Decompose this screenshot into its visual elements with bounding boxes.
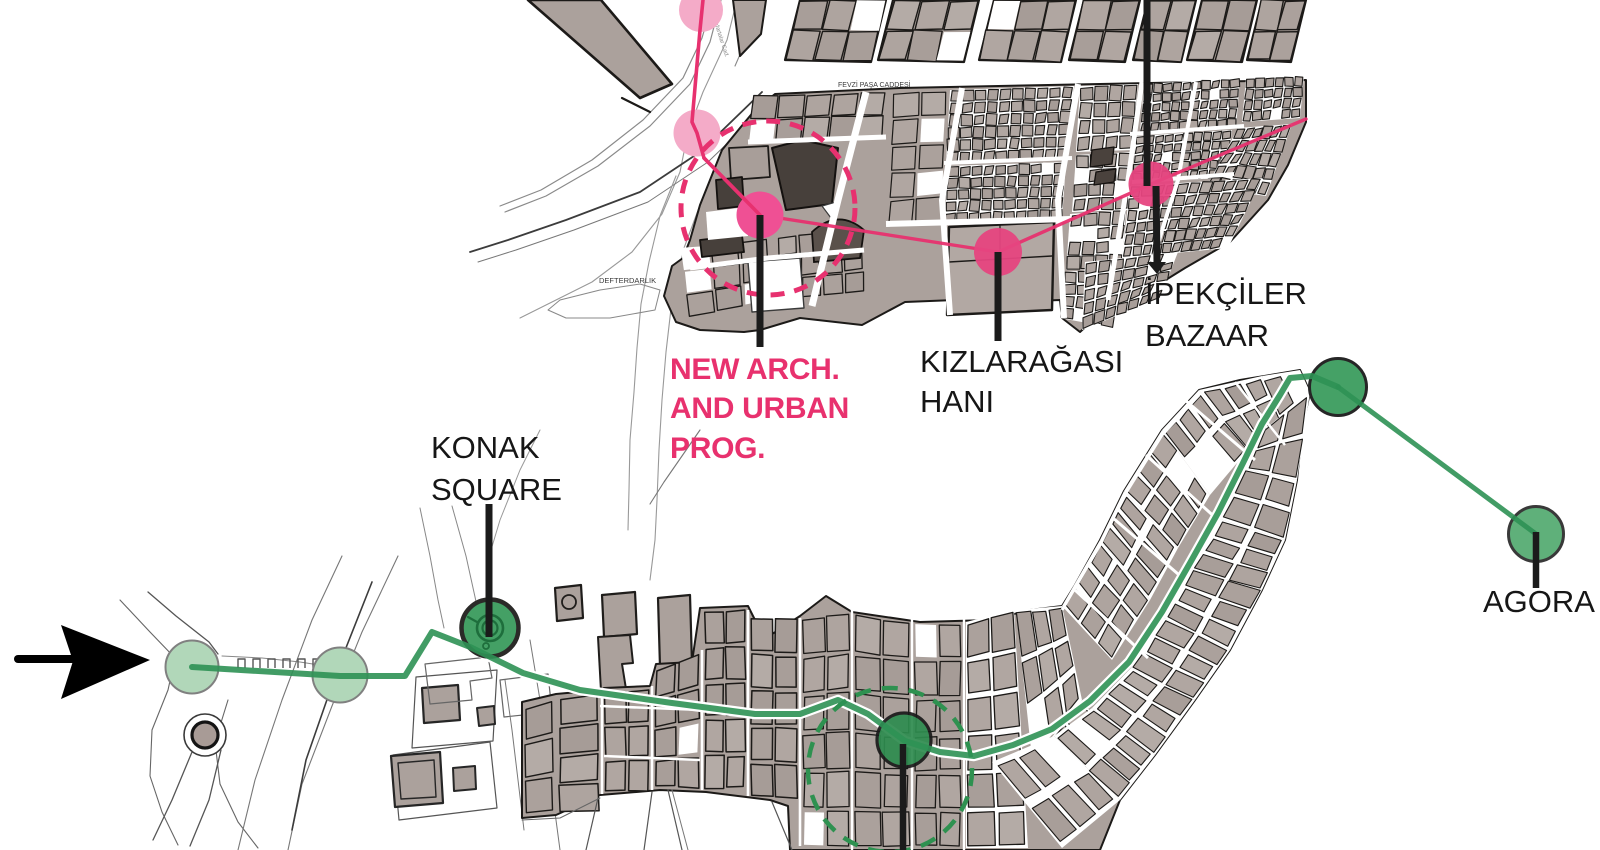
svg-text:BAZAAR: BAZAAR bbox=[1145, 318, 1269, 353]
svg-text:PROG.: PROG. bbox=[670, 432, 765, 465]
svg-text:İPEKÇİLER: İPEKÇİLER bbox=[1145, 276, 1307, 311]
svg-text:FEVZİ PAŞA CADDESİ: FEVZİ PAŞA CADDESİ bbox=[838, 80, 911, 89]
svg-text:KONAK: KONAK bbox=[431, 430, 540, 465]
svg-text:HANI: HANI bbox=[920, 384, 994, 419]
svg-text:AGORA: AGORA bbox=[1483, 584, 1595, 619]
svg-text:DEFTERDARLIK: DEFTERDARLIK bbox=[599, 276, 656, 285]
svg-text:AND URBAN: AND URBAN bbox=[670, 392, 849, 425]
svg-text:KIZLARAĞASI: KIZLARAĞASI bbox=[920, 344, 1123, 379]
svg-text:NEW ARCH.: NEW ARCH. bbox=[670, 353, 840, 386]
svg-text:SQUARE: SQUARE bbox=[431, 472, 562, 507]
